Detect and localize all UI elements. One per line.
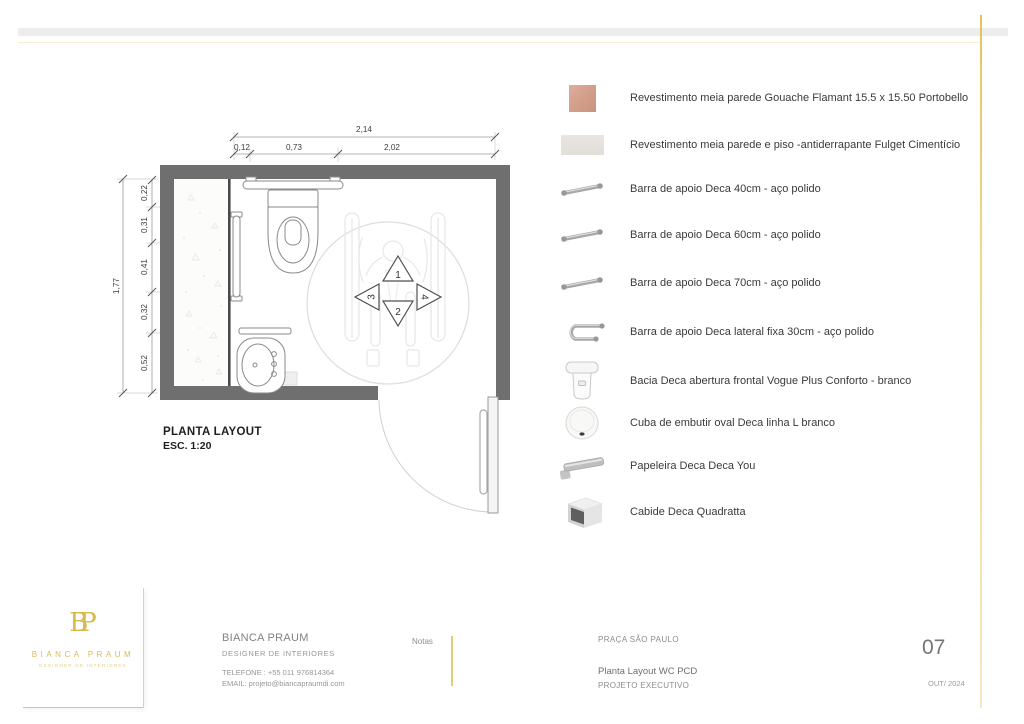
legend-item-label: Barra de apoio Deca 70cm - aço polido [630,277,821,289]
arrow-4-label: 4 [419,294,430,300]
legend-item-label: Revestimento meia parede e piso -antider… [630,139,960,151]
legend-item: Revestimento meia parede e piso -antider… [552,123,1002,167]
floor-plan: 1 2 3 4 [100,110,520,530]
logo-box: BP BIANCA PRAUM DESIGNER DE INTERIORES [23,588,144,708]
dim-height-seg2: 0,31 [140,217,149,233]
logo-tagline: DESIGNER DE INTERIORES [36,664,130,669]
sheet-number: 07 [922,636,945,660]
drawing-phase: PROJETO EXECUTIVO [598,681,697,690]
dim-height-total: 1,77 [112,278,121,294]
legend-item: Barra de apoio Deca 60cm - aço polido [552,213,1002,257]
dim-width-seg1: 0,12 [234,143,250,152]
notes-label: Notas [412,637,433,646]
logo-name: BIANCA PRAUM [23,650,143,659]
arrow-2-label: 2 [395,307,401,318]
firm-name: BIANCA PRAUM [222,632,345,644]
logo-monogram: BP [23,608,143,638]
legend-item: Papeleira Deca Deca You [552,444,1002,488]
legend-item: Bacia Deca abertura frontal Vogue Plus C… [552,359,1002,403]
plan-caption: PLANTA LAYOUT ESC. 1:20 [163,426,262,452]
legend-item: Barra de apoio Deca 70cm - aço polido [552,261,1002,305]
drawing-sheet: 1 2 3 4 [0,0,1024,724]
titleblock-firm: BIANCA PRAUM DESIGNER DE INTERIORES TELE… [222,632,345,690]
hook-icon [552,494,612,530]
dim-height-seg3: 0,41 [140,259,149,275]
legend-item-label: Cuba de embutir oval Deca linha L branco [630,417,835,429]
dim-height-seg4: 0,32 [140,304,149,320]
firm-email: EMAIL: projeto@biancapraumdi.com [222,678,345,689]
dim-width-seg2: 0,73 [286,143,302,152]
grab-bar-icon [552,274,612,292]
legend-item-label: Papeleira Deca Deca You [630,460,755,472]
door-symbol [379,397,498,513]
legend-item-label: Revestimento meia parede Gouache Flamant… [630,92,968,104]
legend-item: Cuba de embutir oval Deca linha L branco [552,401,1002,445]
dimension-top: 2,14 0,12 0,73 2,02 [230,125,499,162]
legend-item-label: Barra de apoio Deca lateral fixa 30cm - … [630,326,874,338]
legend-item-label: Barra de apoio Deca 40cm - aço polido [630,183,821,195]
paper-holder-icon [552,452,612,480]
top-gray-bar [18,28,1008,36]
titleblock-divider [451,636,453,686]
dim-width-total: 2,14 [356,125,372,134]
top-accent-line [18,42,980,43]
paper-holder-symbol [239,328,291,334]
vertical-grab-bar [231,212,242,301]
legend-item: Cabide Deca Quadratta [552,490,1002,534]
legend-item: Barra de apoio Deca 40cm - aço polido [552,167,1002,211]
arrow-3-label: 3 [367,294,378,300]
firm-role: DESIGNER DE INTERIORES [222,649,345,658]
titleblock-project: PRAÇA SÃO PAULO Planta Layout WC PCD PRO… [598,635,697,690]
legend-item: Barra de apoio Deca lateral fixa 30cm - … [552,310,1002,354]
drawing-title: Planta Layout WC PCD [598,666,697,677]
plan-scale: ESC. 1:20 [163,440,262,452]
shower-area [174,179,229,386]
dim-width-seg3: 2,02 [384,143,400,152]
toilet-icon [552,361,612,401]
plan-title: PLANTA LAYOUT [163,426,262,438]
tile-swatch-gray-icon [552,135,612,155]
sheet-date: OUT/ 2024 [928,679,965,688]
dim-height-seg5: 0,52 [140,355,149,371]
grab-bar-icon [552,226,612,244]
partition-wall [228,179,231,386]
legend-item-label: Cabide Deca Quadratta [630,506,746,518]
grab-bar-lateral-icon [552,320,612,344]
legend-item-label: Bacia Deca abertura frontal Vogue Plus C… [630,375,911,387]
dim-height-seg1: 0,22 [140,185,149,201]
firm-phone: TELEFONE : +55 011 976814364 [222,667,345,678]
basin-icon [552,405,612,441]
arrow-1-label: 1 [395,270,401,281]
tile-swatch-pink-icon [552,85,612,112]
grab-bar-icon [552,180,612,198]
project-location: PRAÇA SÃO PAULO [598,635,697,644]
legend-item: Revestimento meia parede Gouache Flamant… [552,76,1002,120]
dimension-left: 1,77 0,22 0,31 0,41 0,32 0,52 [112,175,160,397]
legend-item-label: Barra de apoio Deca 60cm - aço polido [630,229,821,241]
